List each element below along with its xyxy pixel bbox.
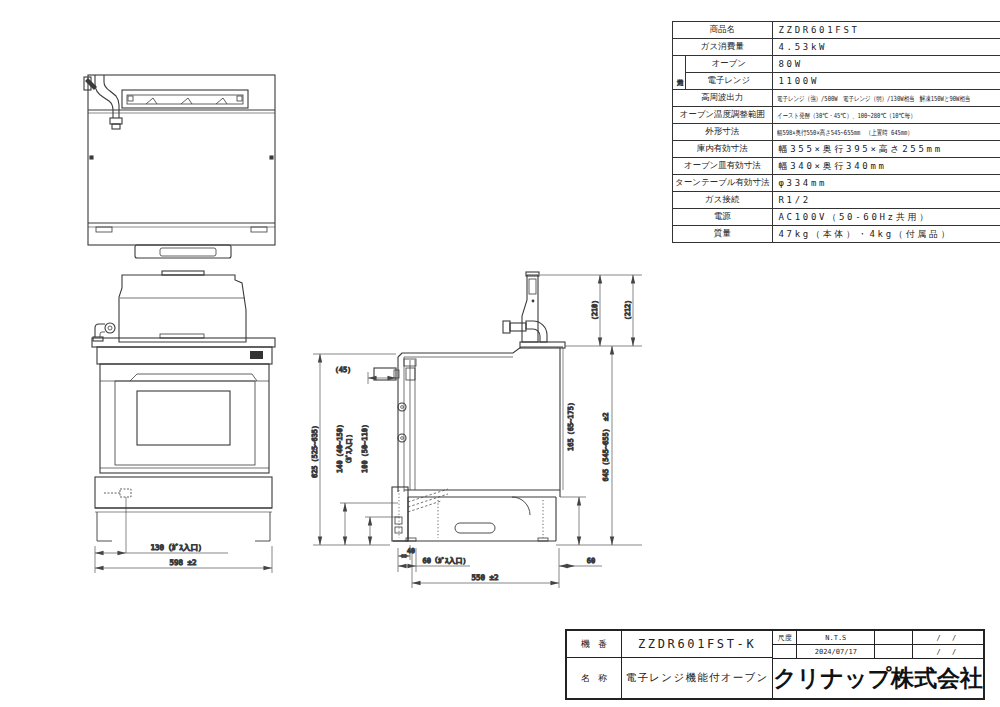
front-view: 130（ｶﾞｽ入口） 598 ±2 — [92, 271, 275, 573]
spec-value: 幅340×奥行340mm — [772, 158, 1000, 175]
product-name-value: 電子レンジ機能付オーブン — [622, 658, 772, 698]
dim-45: （45） — [332, 366, 354, 374]
table-row: 電子レンジ 1100W — [673, 73, 1000, 90]
spec-label: ガス接続 — [673, 192, 773, 209]
spec-group-label: 消費電力 — [673, 56, 686, 90]
spec-value: 1100W — [772, 73, 1000, 90]
spec-value: 電子レンジ（強）/500W 電子レンジ（弱）/130W相当 解凍150Wと90W… — [772, 90, 1000, 107]
top-view — [84, 75, 275, 258]
dim-40: 40 — [407, 547, 415, 555]
dim-625: 625（525~635） — [311, 422, 319, 478]
dim-60-gas: 60（ｶﾞｽ入口） — [423, 557, 470, 565]
dim-645: 645（545~655） ±2 — [602, 413, 610, 482]
date-slash-top: / / — [913, 631, 983, 644]
product-name-label: 名称 — [567, 658, 622, 698]
side-view: （45） 625（525~635） 140（40~150） （ｶﾞｽ入口） 10… — [311, 272, 642, 588]
table-row: オーブン皿有効寸法 幅340×奥行340mm — [673, 158, 1000, 175]
scale-label: 尺度 — [773, 631, 797, 644]
dim-550: 550 ±2 — [471, 573, 498, 582]
table-row: 電源 AC100V（50-60Hz共用） — [673, 209, 1000, 226]
date-slash-bottom: / / — [913, 645, 983, 658]
spec-value: 幅598×奥行550×高さ545~655mm （上置時 645mm） — [772, 124, 1000, 141]
spec-label: 商品名 — [673, 22, 773, 39]
model-number-label: 機番 — [567, 631, 622, 657]
spec-label: 質量 — [673, 226, 773, 243]
spec-label: 高周波出力 — [673, 90, 773, 107]
scale-value: N.T.S — [797, 631, 875, 644]
spec-label: 外形寸法 — [673, 124, 773, 141]
table-row: 庫内有効寸法 幅355×奥行395×高さ255mm — [673, 141, 1000, 158]
spec-value: AC100V（50-60Hz共用） — [772, 209, 1000, 226]
drawing-date: 2024/07/17 — [797, 645, 875, 658]
dim-165: 165（65~175） — [567, 399, 575, 451]
table-row: 外形寸法 幅598×奥行550×高さ545~655mm （上置時 645mm） — [673, 124, 1000, 141]
dim-140-gas: 140（40~150） — [336, 421, 344, 473]
spec-value: イースト発酵（30℃・45℃）、100~280℃（10℃毎） — [772, 107, 1000, 124]
dim-140-gas-note: （ｶﾞｽ入口） — [345, 431, 353, 467]
spec-label: オーブン皿有効寸法 — [673, 158, 773, 175]
title-block: 機番 ZZDR601FST-K 名称 電子レンジ機能付オーブン 尺度 N.T.S… — [565, 629, 985, 700]
drawing-sheet: 130（ｶﾞｽ入口） 598 ±2 — [0, 0, 1000, 707]
dim-130-gas-inlet: 130（ｶﾞｽ入口） — [151, 543, 206, 552]
table-row: 質量 47kg（本体）・4kg（付属品） — [673, 226, 1000, 243]
dim-212: （212） — [624, 297, 632, 324]
company-name: クリナップ株式会社 — [773, 659, 983, 698]
spec-label: オーブン温度調整範囲 — [673, 107, 773, 124]
spec-label: 電源 — [673, 209, 773, 226]
empty-cell — [875, 631, 913, 644]
model-number-value: ZZDR601FST-K — [622, 631, 772, 657]
spec-label: 電子レンジ — [685, 73, 772, 90]
table-row: ガス接続 R1/2 — [673, 192, 1000, 209]
spec-value: 47kg（本体）・4kg（付属品） — [772, 226, 1000, 243]
table-row: ガス消費量 4.53kW — [673, 39, 1000, 56]
spec-value: φ334mm — [772, 175, 1000, 192]
dim-100: 100（50~110） — [361, 421, 369, 473]
table-row: オーブン温度調整範囲 イースト発酵（30℃・45℃）、100~280℃（10℃毎… — [673, 107, 1000, 124]
spec-label: ガス消費量 — [673, 39, 773, 56]
spec-label: オーブン — [685, 56, 772, 73]
spec-value: 幅355×奥行395×高さ255mm — [772, 141, 1000, 158]
empty-cell — [875, 645, 913, 658]
spec-value: R1/2 — [772, 192, 1000, 209]
table-row: ターンテーブル有効寸法 φ334mm — [673, 175, 1000, 192]
spec-value: 4.53kW — [772, 39, 1000, 56]
spec-table: 商品名 ZZDR601FST ガス消費量 4.53kW 消費電力 オーブン 80… — [672, 21, 1000, 243]
spec-label: 庫内有効寸法 — [673, 141, 773, 158]
empty-cell — [773, 645, 797, 658]
spec-value: ZZDR601FST — [772, 22, 1000, 39]
dim-210: （210） — [591, 297, 599, 324]
table-row: 商品名 ZZDR601FST — [673, 22, 1000, 39]
spec-label: ターンテーブル有効寸法 — [673, 175, 773, 192]
spec-value: 80W — [772, 56, 1000, 73]
table-row: 消費電力 オーブン 80W — [673, 56, 1000, 73]
table-row: 高周波出力 電子レンジ（強）/500W 電子レンジ（弱）/130W相当 解凍15… — [673, 90, 1000, 107]
dim-60-right: 60 — [587, 557, 595, 565]
dim-598: 598 ±2 — [169, 558, 196, 567]
